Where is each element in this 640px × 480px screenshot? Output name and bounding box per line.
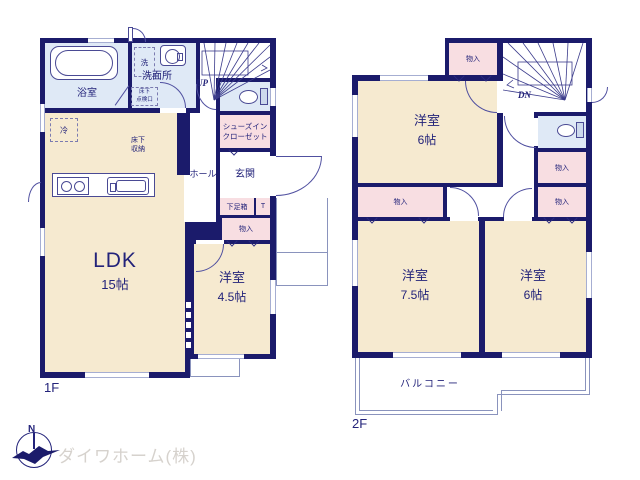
- bathroom-label: 浴室: [70, 88, 104, 101]
- sic-label-line2: クローゼット: [223, 132, 268, 141]
- window: [85, 372, 149, 378]
- washroom-label: 洗面所: [134, 71, 180, 84]
- room-ldk: [45, 113, 185, 372]
- room-hall-1f: [190, 113, 216, 222]
- balcony-inner-right: [501, 358, 586, 391]
- bedroom75-size-label: 7.5帖: [392, 288, 438, 303]
- underfloor-inspection-hatch: 床下 点検口: [131, 87, 158, 106]
- floor1-label: 1F: [44, 380, 59, 396]
- f2-bedroom6btm-door-opening: [504, 217, 532, 221]
- balcony-inner-step-line: [501, 390, 502, 411]
- bedroom6top-size-label: 6帖: [404, 133, 450, 148]
- entrance-porch: [276, 198, 328, 286]
- underfloor-storage-label: 床下 収納: [122, 136, 154, 154]
- compass: N: [12, 424, 62, 474]
- window: [270, 88, 276, 106]
- backdoor-arc: [133, 28, 146, 42]
- shoebox-label: 下足箱: [227, 202, 248, 212]
- refrigerator-label: 冷: [60, 125, 68, 136]
- stairs-up-label: UP: [196, 78, 208, 89]
- kitchen-sink: [107, 177, 149, 195]
- f1-washroom-door-opening: [160, 108, 186, 113]
- shoebox-t-label: T: [261, 203, 265, 210]
- window: [40, 228, 45, 256]
- toilet-fixture-2f: [556, 120, 584, 140]
- refrigerator-space: 冷: [50, 118, 78, 142]
- f1-wall-stub: [177, 113, 190, 175]
- window: [40, 104, 45, 132]
- entrance-label: 玄関: [226, 169, 264, 182]
- washbasin: [160, 45, 186, 66]
- bedroom6btm-label: 洋室: [510, 268, 556, 284]
- closet-2f-a: 物入: [538, 152, 586, 183]
- bedroom6top-label: 洋室: [404, 113, 450, 129]
- window: [380, 75, 428, 81]
- bathtub: [50, 46, 118, 80]
- closet-1f-label: 物入: [239, 224, 253, 234]
- bedroom45-label: 洋室: [209, 270, 255, 286]
- room-shoes-in-closet: シューズイン クローゼット: [220, 115, 270, 148]
- balcony-label: バルコニー: [390, 379, 470, 392]
- inspection-label-line2: 点検口: [136, 97, 153, 103]
- window: [352, 240, 358, 286]
- ldk-label: LDK: [85, 248, 145, 274]
- entrance-door-arc: [276, 156, 322, 196]
- kitchen-side-door-arc: [28, 182, 41, 202]
- company-name: ダイワホーム(株): [58, 446, 197, 467]
- bedroom45-size-label: 4.5帖: [209, 290, 255, 305]
- closet-2f-top: 物入: [449, 43, 497, 75]
- bedroom6btm-size-label: 6帖: [510, 288, 556, 303]
- room-bedroom-6-bottom: [485, 221, 586, 352]
- washing-machine-label: 洗: [141, 57, 149, 68]
- closet-2f-top-label: 物入: [466, 54, 480, 64]
- floor-plan-canvas: シューズイン クローゼット 下足箱 T 物入: [0, 0, 640, 480]
- closet-2f-b: 物入: [538, 187, 586, 217]
- f2-bedroom75-door-opening: [450, 217, 478, 221]
- balcony-step-line: [497, 394, 498, 415]
- window: [586, 252, 592, 298]
- shoebox-cabinet: 下足箱: [220, 198, 254, 215]
- window: [88, 38, 114, 43]
- room-bedroom-75: [358, 221, 479, 352]
- ldk-size-label: 15帖: [85, 277, 145, 293]
- f1-ldk-hall-opening: [184, 175, 190, 222]
- window: [352, 95, 358, 137]
- closet-2f-b-label: 物入: [555, 197, 569, 207]
- closet-2f-c-label: 物入: [394, 197, 408, 207]
- compass-bird-icon: [12, 444, 62, 466]
- closet-2f-a-label: 物入: [555, 163, 569, 173]
- entrance-porch-step: [276, 252, 328, 253]
- stairs-dn-label: DN: [518, 90, 531, 101]
- stairs2f-side-arc: [592, 87, 608, 103]
- stove: [57, 177, 89, 195]
- terrace-porch: [190, 359, 240, 377]
- bedroom75-label: 洋室: [392, 268, 438, 284]
- stairs-treads-1f: [200, 43, 270, 118]
- f1-sliding-door: [186, 302, 191, 348]
- kitchen-counter: [52, 173, 155, 197]
- sic-label-line1: シューズイン: [223, 122, 268, 131]
- stairs-treads-2f: [503, 43, 586, 112]
- shoebox-t-cell: T: [256, 198, 270, 215]
- backdoor-leaf: [128, 27, 133, 42]
- hall-label: ホール: [189, 169, 217, 180]
- floor2-label: 2F: [352, 416, 367, 432]
- inspection-label-line1: 床下: [139, 89, 150, 95]
